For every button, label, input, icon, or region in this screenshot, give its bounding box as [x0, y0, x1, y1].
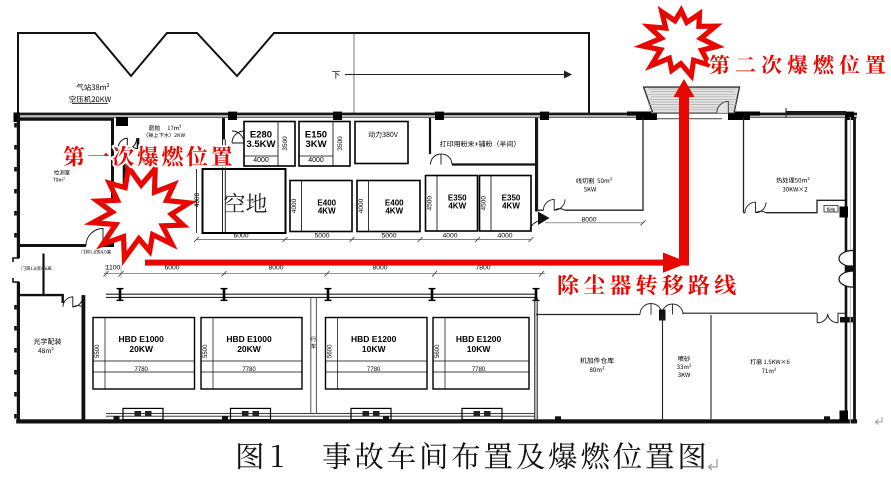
svg-text:4500: 4500	[427, 196, 434, 211]
svg-text:5000: 5000	[314, 233, 329, 240]
svg-text:5600: 5600	[435, 344, 441, 358]
svg-text:5000: 5000	[381, 233, 396, 240]
svg-text:5500: 5500	[95, 344, 101, 358]
svg-text:5500: 5500	[203, 344, 209, 358]
svg-text:HBD E1200: HBD E1200	[351, 334, 397, 344]
svg-text:5600: 5600	[328, 344, 334, 358]
svg-text:4500: 4500	[481, 196, 488, 211]
svg-text:7780: 7780	[242, 367, 256, 373]
svg-text:10KW: 10KW	[467, 344, 492, 354]
svg-text:7780: 7780	[472, 367, 486, 373]
svg-text:4KW: 4KW	[385, 207, 403, 216]
svg-text:4000: 4000	[253, 157, 269, 164]
svg-text:4000: 4000	[442, 233, 457, 240]
svg-text:3500: 3500	[337, 136, 344, 151]
svg-text:10KW: 10KW	[362, 344, 387, 354]
svg-text:7780: 7780	[135, 367, 149, 373]
svg-text:20KW: 20KW	[237, 344, 262, 354]
svg-text:3500: 3500	[282, 136, 289, 151]
svg-text:4KW: 4KW	[502, 202, 520, 211]
svg-text:20KW: 20KW	[129, 344, 154, 354]
svg-text:4000: 4000	[291, 198, 298, 213]
svg-text:4KW: 4KW	[318, 207, 336, 216]
svg-text:8000: 8000	[581, 217, 596, 224]
svg-text:3KW: 3KW	[305, 139, 326, 150]
svg-text:7780: 7780	[367, 367, 381, 373]
svg-text:HBD E1000: HBD E1000	[119, 334, 165, 344]
svg-text:1100: 1100	[106, 265, 121, 272]
svg-text:HBD E1200: HBD E1200	[456, 334, 502, 344]
svg-text:4000: 4000	[497, 233, 512, 240]
svg-text:6000: 6000	[233, 233, 248, 240]
svg-text:3.5KW: 3.5KW	[246, 139, 275, 150]
svg-text:4KW: 4KW	[448, 202, 466, 211]
svg-text:HBD E1000: HBD E1000	[226, 334, 272, 344]
svg-text:4000: 4000	[308, 157, 324, 164]
svg-text:4000: 4000	[358, 198, 365, 213]
